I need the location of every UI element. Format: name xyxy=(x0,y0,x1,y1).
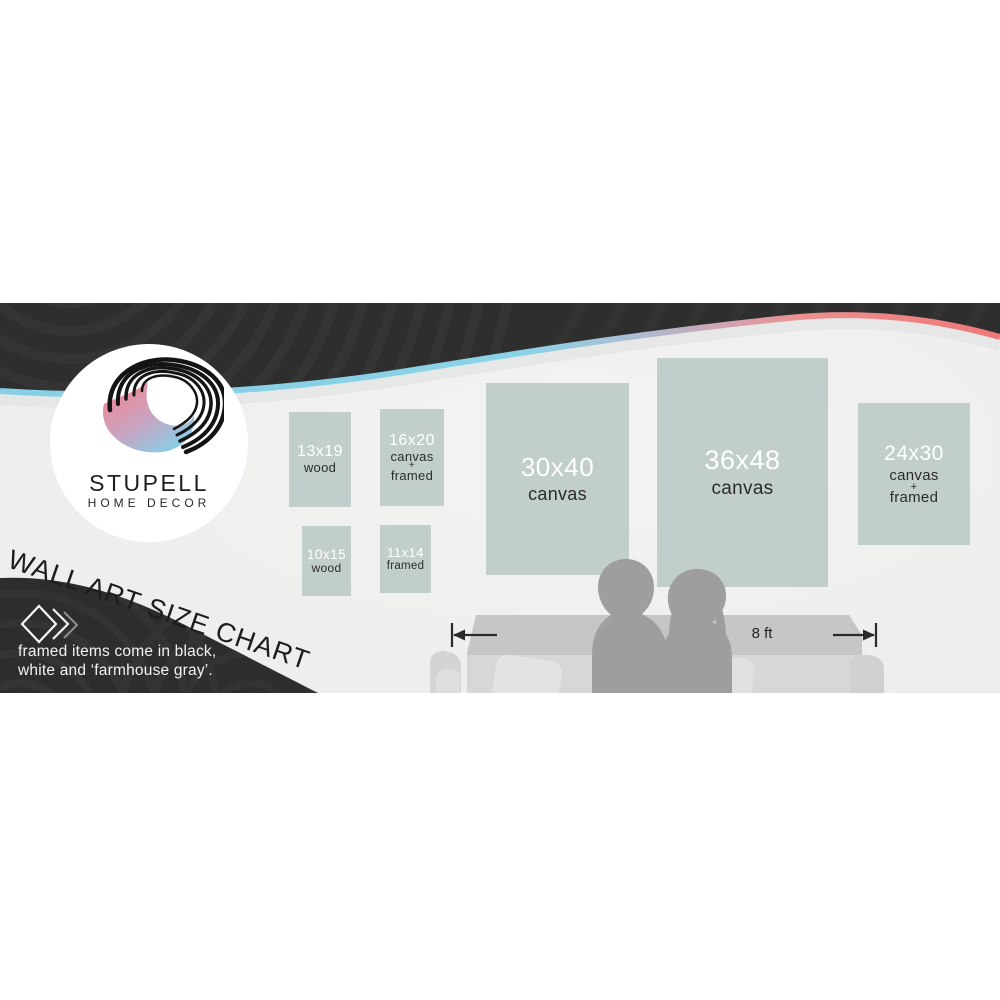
living-room-illustration xyxy=(0,303,1000,693)
measure-distance-label: 8 ft xyxy=(742,625,782,642)
man-silhouette xyxy=(592,559,667,693)
wall-art-size-chart-banner: 13x19 wood 16x20 canvas + framed 10x15 w… xyxy=(0,303,1000,693)
